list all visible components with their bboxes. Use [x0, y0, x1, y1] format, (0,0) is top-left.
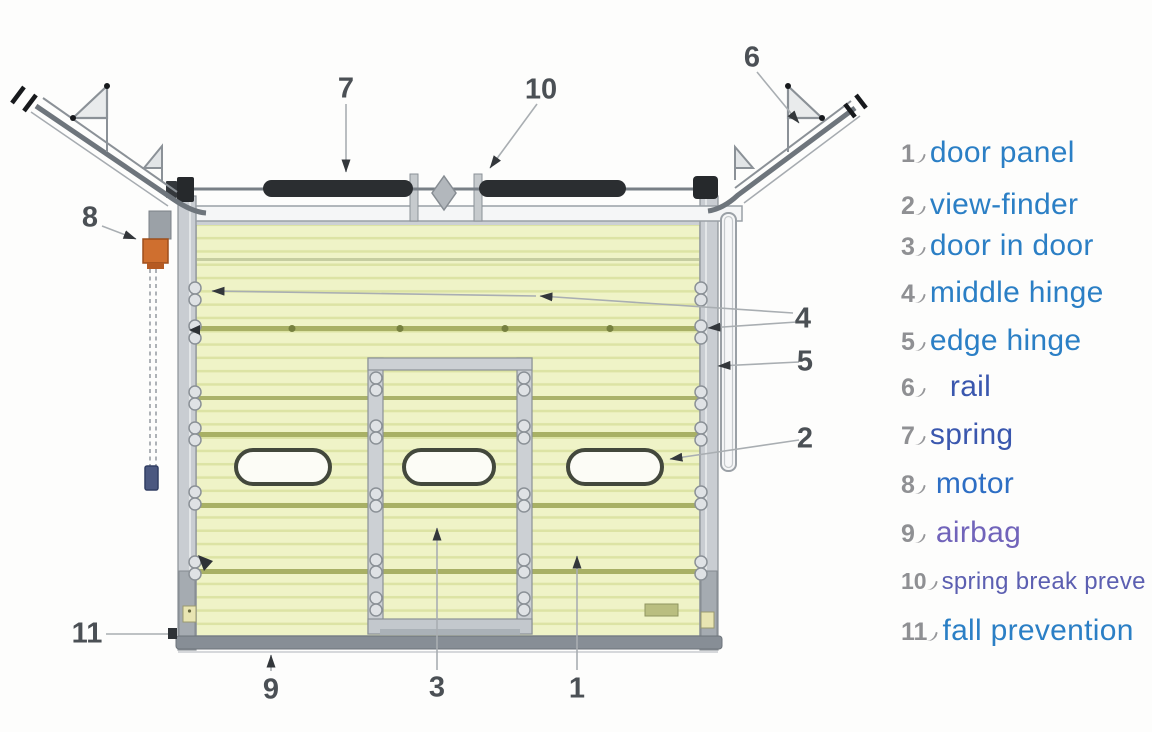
- callout-2: 2: [797, 425, 813, 454]
- legend-item-fall-prevention: 11fall prevention: [901, 616, 1134, 646]
- callout-5: 5: [797, 348, 813, 377]
- legend-item-motor: 8motor: [901, 469, 1014, 499]
- legend-number: 7: [901, 424, 915, 449]
- legend-number: 9: [901, 522, 915, 547]
- enumeration-tick: [914, 152, 926, 165]
- motor-chain: [150, 269, 156, 466]
- fall-prevention-marker: [168, 628, 177, 639]
- legend-label: airbag: [936, 518, 1021, 548]
- legend-label: edge hinge: [930, 326, 1081, 356]
- vent-plate: [645, 604, 678, 616]
- legend-number: 10: [901, 570, 927, 593]
- callout-3: 3: [429, 674, 445, 703]
- enumeration-tick: [914, 532, 926, 545]
- legend-label: motor: [936, 469, 1014, 499]
- legend-number: 11: [901, 620, 927, 645]
- enumeration-tick: [914, 483, 926, 496]
- legend-item-airbag: 9airbag: [901, 518, 1021, 548]
- callout-1: 1: [569, 675, 585, 704]
- chain-handle: [145, 466, 158, 490]
- header-track: [196, 206, 742, 221]
- door-panel: [196, 220, 700, 636]
- enumeration-tick: [914, 340, 926, 353]
- legend-item-door-in-door: 3door in door: [901, 231, 1094, 261]
- legend-label: middle hinge: [930, 278, 1104, 308]
- legend-label: rail: [950, 372, 991, 402]
- enumeration-tick: [914, 386, 926, 399]
- right-vertical-track: [721, 213, 736, 471]
- legend-label: view-finder: [930, 190, 1078, 220]
- legend-number: 1: [901, 142, 915, 167]
- legend-number: 5: [901, 330, 915, 355]
- legend-item-edge-hinge: 5edge hinge: [901, 326, 1081, 356]
- legend-item-middle-hinge: 4middle hinge: [901, 278, 1104, 308]
- legend-label: spring break preve: [942, 570, 1146, 594]
- enumeration-tick: [926, 579, 938, 592]
- legend-label: spring: [930, 420, 1014, 450]
- enumeration-tick: [927, 630, 939, 643]
- enumeration-tick: [914, 292, 926, 305]
- enumeration-tick: [914, 204, 926, 217]
- callout-4: 4: [795, 305, 811, 334]
- enumeration-tick: [914, 245, 926, 258]
- legend-label: fall prevention: [942, 616, 1133, 646]
- legend-item-rail: 6rail: [901, 372, 991, 402]
- enumeration-tick: [914, 434, 926, 447]
- callout-7: 7: [338, 75, 354, 104]
- callout-6: 6: [744, 44, 760, 73]
- legend-item-view-finder: 2view-finder: [901, 190, 1078, 220]
- legend-number: 8: [901, 473, 915, 498]
- callout-11: 11: [72, 620, 103, 649]
- legend-number: 3: [901, 235, 915, 260]
- legend-item-door-panel: 1door panel: [901, 138, 1075, 168]
- shaft-coupler-diamond: [432, 176, 456, 210]
- legend-number: 2: [901, 194, 915, 219]
- legend-label: door panel: [930, 138, 1075, 168]
- legend-item-spring-break-prevention: 10spring break preve: [901, 570, 1146, 594]
- motor: [143, 211, 171, 269]
- view-finder-windows: [236, 450, 662, 484]
- right-rail: [708, 83, 866, 211]
- legend-number: 4: [901, 282, 915, 307]
- airbag-bottom-seal: [176, 636, 722, 652]
- callout-10: 10: [525, 76, 557, 105]
- legend-number: 6: [901, 376, 915, 401]
- legend-label: door in door: [930, 231, 1094, 261]
- garage-door-diagram-page: 7 10 6 8 4 5 2 11 9 3 1 1door panel 2vie…: [0, 0, 1152, 732]
- callout-9: 9: [263, 676, 279, 705]
- callout-8: 8: [82, 204, 98, 233]
- legend-item-spring: 7spring: [901, 420, 1013, 450]
